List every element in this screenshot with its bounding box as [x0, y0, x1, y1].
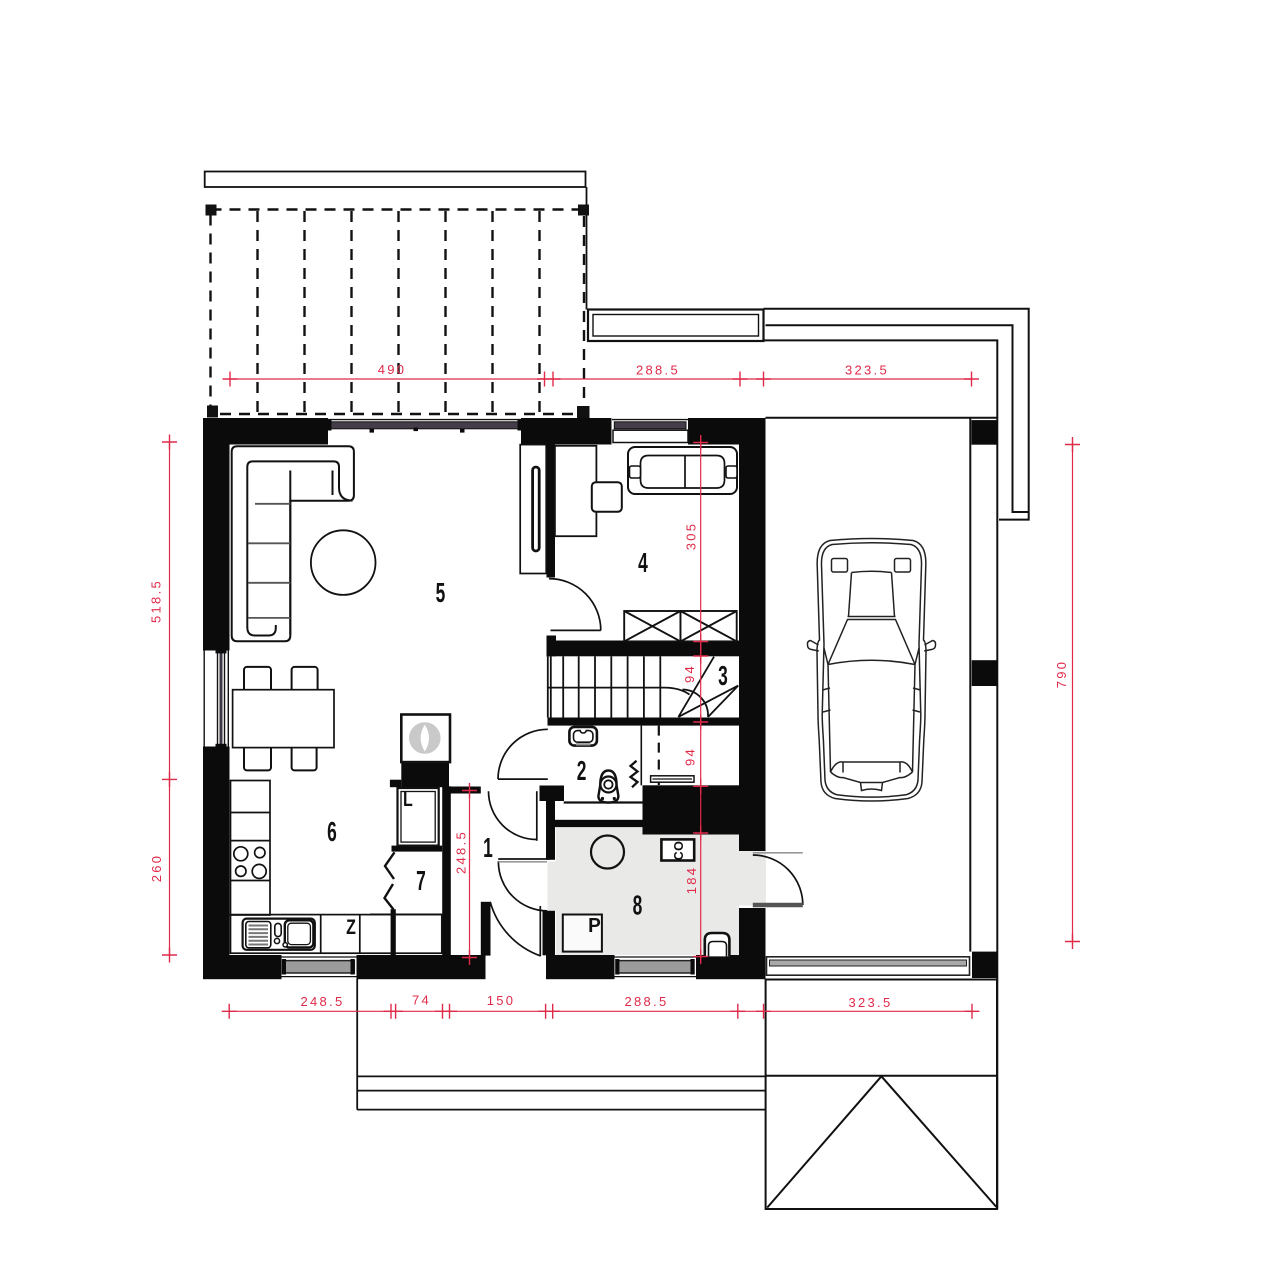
svg-text:323.5: 323.5	[845, 363, 889, 378]
svg-text:94: 94	[683, 747, 698, 766]
svg-text:184: 184	[684, 866, 699, 895]
svg-text:5: 5	[436, 577, 446, 608]
svg-text:CO: CO	[672, 841, 686, 861]
svg-text:260: 260	[149, 854, 164, 883]
svg-text:323.5: 323.5	[848, 995, 892, 1010]
svg-text:790: 790	[1054, 660, 1069, 689]
svg-text:288.5: 288.5	[624, 994, 668, 1009]
svg-text:248.5: 248.5	[300, 994, 344, 1009]
svg-text:288.5: 288.5	[636, 363, 680, 378]
svg-text:P: P	[588, 915, 601, 938]
svg-text:Z: Z	[346, 915, 356, 939]
svg-text:3: 3	[718, 660, 728, 691]
svg-text:94: 94	[682, 664, 697, 683]
svg-text:150: 150	[487, 993, 516, 1008]
svg-text:1: 1	[483, 832, 493, 863]
svg-text:74: 74	[412, 993, 431, 1008]
svg-text:2: 2	[577, 755, 587, 786]
svg-text:4: 4	[638, 547, 648, 578]
svg-text:8: 8	[633, 889, 643, 920]
svg-text:305: 305	[684, 522, 699, 551]
svg-text:L: L	[403, 787, 413, 810]
svg-text:6: 6	[327, 816, 337, 847]
svg-text:248.5: 248.5	[454, 830, 469, 874]
svg-text:490: 490	[378, 362, 407, 377]
svg-text:7: 7	[416, 865, 426, 896]
svg-text:518.5: 518.5	[149, 579, 164, 623]
